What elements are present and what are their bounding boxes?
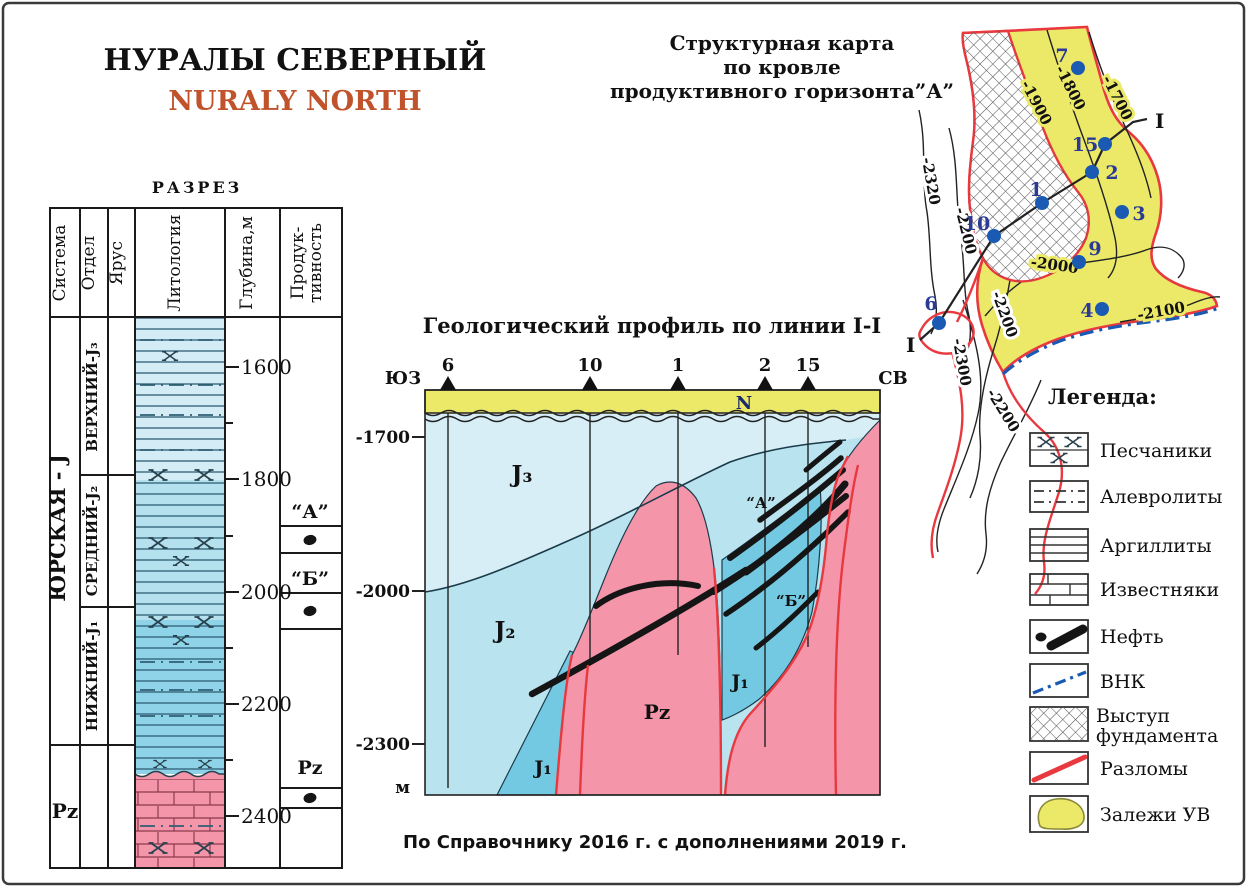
header-productivity-1: Продук- (288, 227, 308, 300)
productivity-horizon-a: “А” (291, 501, 328, 523)
profile-depth-unit: м (395, 778, 410, 798)
horizon-label-b: “Б” (776, 592, 806, 610)
horizon-label-a: “А” (746, 494, 775, 512)
map-well-dot-4 (1095, 302, 1109, 316)
geology-figure: НУРАЛЫ СЕВЕРНЫЙ NURALY NORTH РАЗРЕЗ (0, 0, 1247, 889)
system-paleozoic-label: Pz (52, 799, 78, 823)
legend-label-basement-1: Выступ (1096, 705, 1170, 727)
geology-figure-page: НУРАЛЫ СЕВЕРНЫЙ NURALY NORTH РАЗРЕЗ (0, 0, 1247, 889)
profile-well-2: 2 (759, 355, 772, 376)
depth-label-1600: 1600 (241, 355, 292, 379)
legend-label-argillite: Аргиллиты (1100, 535, 1212, 557)
oil-swatch-dot (1036, 633, 1047, 642)
map-well-dot-7 (1071, 61, 1085, 75)
map-title-2: по кровле (723, 55, 840, 79)
map-well-dot-9 (1072, 255, 1086, 269)
depth-label-2200: 2200 (241, 692, 292, 716)
legend-label-limestone: Известняки (1100, 579, 1219, 601)
legend-label-sandstone: Песчаники (1100, 440, 1212, 462)
legend-label-oil: Нефть (1100, 626, 1164, 648)
productivity-horizon-b: “Б” (291, 568, 329, 590)
deposits-swatch (1038, 799, 1084, 829)
strat-column-title: РАЗРЕЗ (152, 178, 242, 197)
map-well-dot-2 (1085, 165, 1099, 179)
header-stage: Ярус (107, 241, 127, 285)
map-line-label-bottom: I (906, 333, 915, 357)
map-well-label-2: 2 (1105, 162, 1118, 184)
profile-well-1: 1 (672, 355, 685, 376)
lithology-limestone-bricks (135, 779, 225, 868)
legend-label-deposits: Залежи УВ (1100, 804, 1210, 826)
profile-title: Геологический профиль по линии I-I (423, 313, 881, 338)
map-well-dot-15 (1098, 137, 1112, 151)
page-title-english: NURALY NORTH (168, 86, 421, 117)
series-middle-label: СРЕДНИЙ-J₂ (82, 486, 101, 596)
series-upper-label: ВЕРХНИЙ-J₃ (82, 342, 101, 451)
map-well-dot-6 (932, 316, 946, 330)
profile-depth-2300: -2300 (356, 735, 411, 755)
map-well-label-4: 4 (1080, 300, 1093, 322)
depth-label-2400: 2400 (241, 804, 292, 828)
map-well-label-6: 6 (924, 293, 937, 315)
map-title-3: продуктивного горизонта”А” (610, 79, 954, 103)
layer-label-j2: J₂ (493, 617, 516, 644)
map-well-label-3: 3 (1132, 203, 1145, 225)
header-depth: Глубина,м (237, 216, 257, 310)
direction-southwest: ЮЗ (385, 368, 421, 389)
header-system: Система (50, 225, 70, 302)
layer-label-pz: Pz (644, 700, 670, 724)
profile-well-15: 15 (795, 355, 820, 376)
header-series: Отдел (79, 235, 99, 290)
legend-title: Легенда: (1048, 384, 1157, 409)
series-lower-label: НИЖНИЙ-J₁ (82, 621, 101, 731)
map-title-1: Структурная карта (670, 31, 895, 55)
layer-label-n: N (736, 393, 752, 414)
system-jurassic-label: ЮРСКАЯ - J (45, 454, 70, 602)
map-well-label-10: 10 (964, 213, 990, 235)
productivity-pz: Pz (297, 757, 322, 779)
map-well-dot-3 (1115, 205, 1129, 219)
header-productivity-2: тивность (306, 223, 326, 303)
source-note: По Справочнику 2016 г. с дополнениями 20… (403, 832, 907, 853)
legend-label-basement-2: фундамента (1096, 725, 1218, 747)
map-line-label-top: I (1155, 109, 1164, 133)
layer-label-j1-right: J₁ (729, 671, 748, 693)
map-well-label-1: 1 (1029, 179, 1042, 201)
map-well-label-9: 9 (1088, 238, 1101, 260)
basement-swatch (1030, 707, 1088, 741)
profile-depth-1700: -1700 (356, 428, 411, 448)
map-well-label-15: 15 (1072, 134, 1098, 156)
legend-label-siltstone: Алевролиты (1100, 486, 1222, 508)
depth-label-1800: 1800 (241, 467, 292, 491)
page-title-russian: НУРАЛЫ СЕВЕРНЫЙ (104, 40, 487, 78)
legend-label-faults: Разломы (1100, 758, 1188, 780)
profile-neogene-band (425, 390, 880, 413)
profile-well-6: 6 (442, 355, 455, 376)
header-lithology: Литология (165, 214, 185, 311)
profile-depth-2000: -2000 (356, 582, 411, 602)
depth-label-2000: 2000 (241, 580, 292, 604)
layer-label-j3: J₃ (510, 461, 533, 488)
legend-label-vnk: ВНК (1100, 671, 1146, 693)
profile-well-10: 10 (577, 355, 602, 376)
layer-label-j1-left: J₁ (532, 757, 551, 779)
map-well-label-7: 7 (1055, 45, 1068, 67)
direction-northeast: СВ (878, 368, 908, 389)
